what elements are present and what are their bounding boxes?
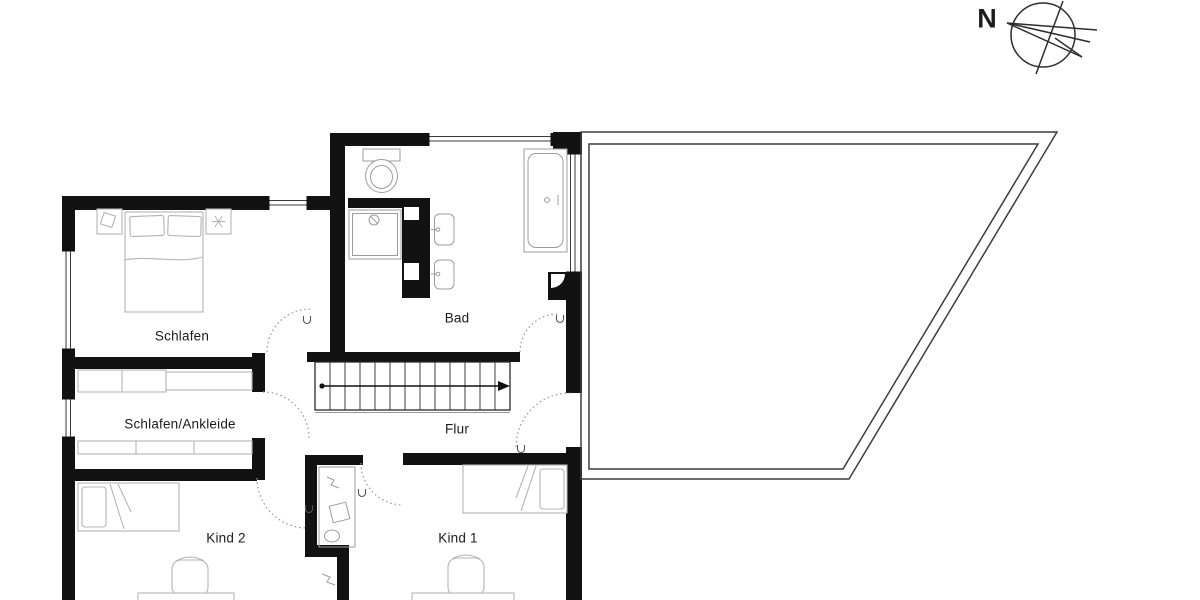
north-label: N — [977, 4, 997, 35]
single-bed-symbol — [463, 465, 567, 513]
door-arc-kind-2 — [257, 478, 307, 528]
room-label-flur: Flur — [445, 422, 469, 437]
window-symbol-bad-right — [566, 153, 582, 273]
room-label-kind-2: Kind 2 — [206, 531, 245, 546]
window-symbol-ankleide-left — [62, 398, 75, 438]
floor-plan: Schlafen Bad Schlafen/Ankleide Flur Kind… — [0, 0, 1200, 600]
wardrobe-symbol — [78, 370, 252, 454]
room-label-schlafen-ankleide: Schlafen/Ankleide — [124, 417, 235, 432]
window-symbol-bad-top — [428, 133, 552, 146]
single-bed-symbol — [78, 483, 179, 531]
roof-terrace-outline — [581, 132, 1057, 479]
washbasin-symbol — [431, 214, 454, 245]
bathtub-symbol — [524, 149, 567, 252]
toilet-symbol — [363, 149, 400, 193]
desk-chair-symbol — [412, 555, 514, 600]
room-label-bad: Bad — [445, 311, 470, 326]
shower-symbol — [349, 210, 401, 259]
double-bed-symbol — [125, 212, 203, 312]
door-arc-kind-1 — [361, 463, 403, 505]
door-arc-ankleide — [263, 392, 309, 438]
desk-chair-symbol — [138, 557, 234, 600]
room-label-schlafen: Schlafen — [155, 329, 209, 344]
window-symbol-schlafen-top — [268, 196, 308, 210]
stairs-symbol — [315, 362, 510, 413]
washbasin-symbol — [431, 260, 454, 289]
door-arc-terrace — [516, 393, 570, 447]
nightstand-symbol — [97, 209, 122, 234]
door-arc-bad — [520, 314, 558, 352]
floor-plan-drawing — [0, 0, 1200, 600]
room-label-kind-1: Kind 1 — [438, 531, 477, 546]
door-arc-schlafen — [267, 309, 310, 352]
window-symbol-schlafen-left — [62, 250, 75, 350]
compass-icon — [1007, 1, 1097, 74]
nightstand-symbol — [206, 209, 231, 234]
